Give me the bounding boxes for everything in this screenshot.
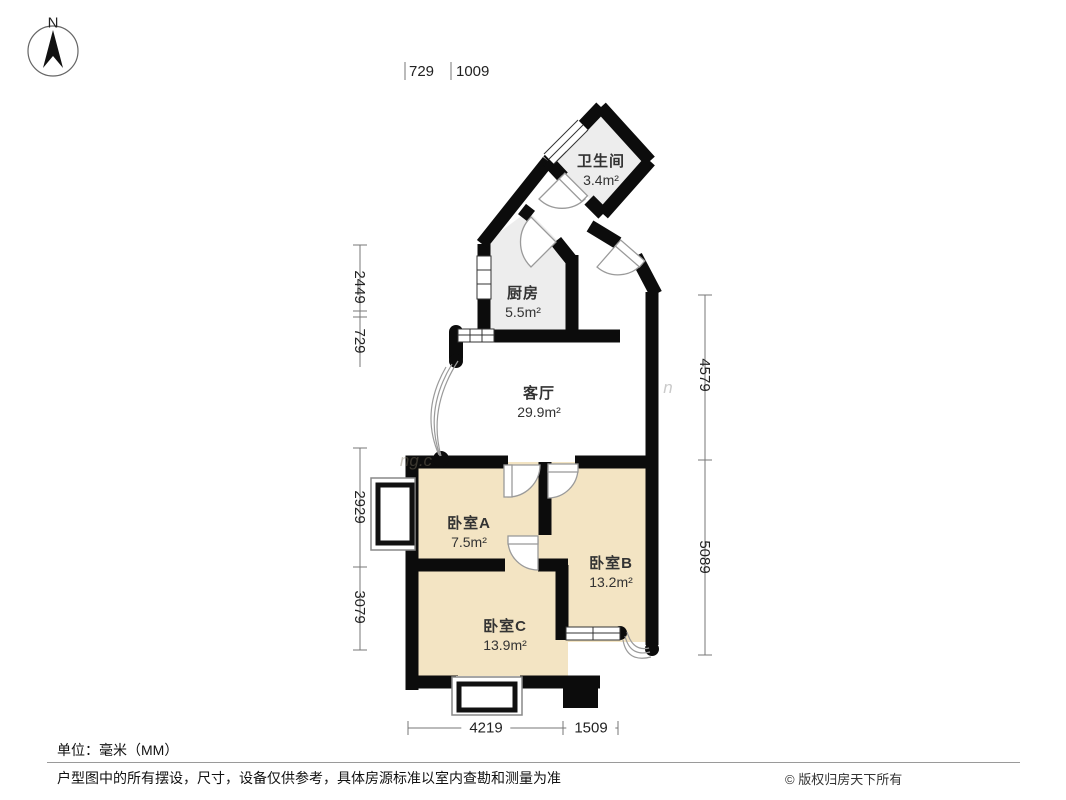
- compass-icon: [28, 26, 78, 76]
- compass-north-label: N: [48, 15, 59, 32]
- dim-left-3: 2929: [351, 470, 369, 544]
- entry-door-arcs-icon: [431, 361, 458, 456]
- dim-top-2: 1009: [456, 63, 489, 80]
- dim-right-1: 4579: [696, 338, 714, 412]
- unit-note: 单位：毫米（MM）: [57, 740, 178, 760]
- dim-right-2: 5089: [696, 520, 714, 594]
- dim-left-2: 729: [351, 304, 369, 378]
- kitchen-window-icon: [477, 256, 491, 299]
- dim-bottom-1: 4219: [461, 720, 510, 737]
- bay-window-left-icon: [371, 478, 415, 550]
- dim-left-4: 3079: [351, 570, 369, 644]
- bedroomB-window-icon: [566, 627, 620, 640]
- floorplan-page: N 729 1009 2449 729 2929 3079 4579 5089 …: [0, 0, 1066, 800]
- dim-bottom-2: 1509: [566, 720, 615, 737]
- bay-window-bottom-icon: [452, 676, 522, 715]
- dim-top-1: 729: [409, 63, 434, 80]
- disclaimer-text: 户型图中的所有摆设，尺寸，设备仅供参考，具体房源标准以室内查勘和测量为准: [57, 768, 561, 788]
- copyright-text: © 版权归房天下所有: [785, 769, 902, 788]
- floorplan-canvas: [0, 0, 1066, 800]
- entry-window-icon: [458, 329, 494, 342]
- footer-divider: [47, 762, 1020, 763]
